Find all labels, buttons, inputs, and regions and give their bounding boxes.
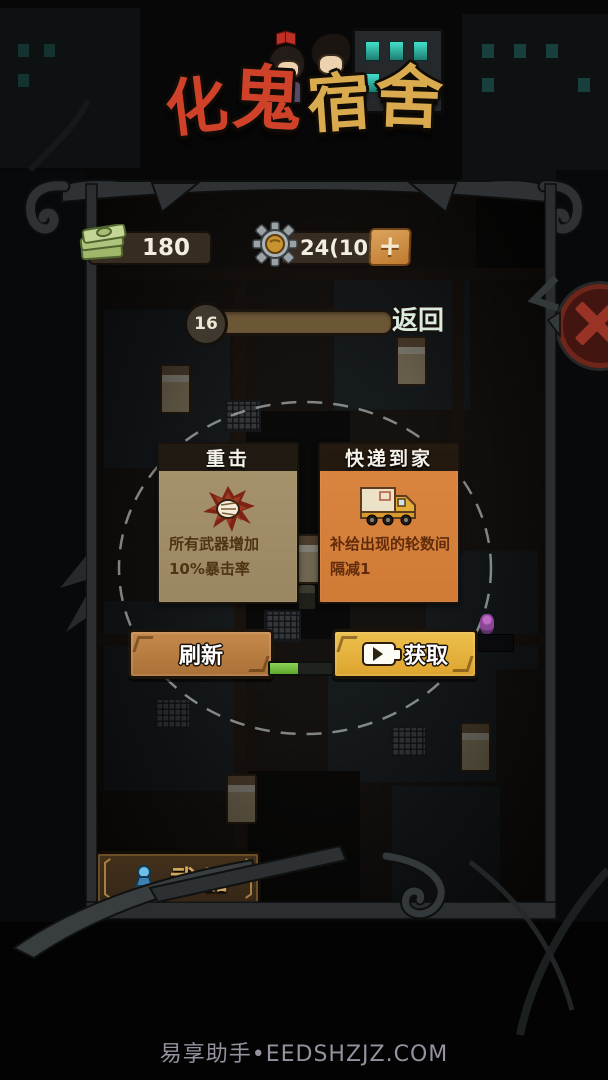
logo-char: 鬼 <box>230 62 304 136</box>
logo-char: 化 <box>162 72 231 141</box>
brace-decoration <box>240 862 252 895</box>
card-title: 快递到家 <box>345 444 433 471</box>
add-parts-button[interactable]: + <box>368 228 411 266</box>
card-description: 补给出现的轮数间 隔减1 <box>330 532 454 582</box>
ad-progress-bar <box>268 661 335 676</box>
money-stack-icon <box>76 224 130 266</box>
logo-char: 宿 <box>305 70 372 137</box>
ghost-sprite <box>480 614 494 634</box>
round-counter: 16 <box>184 302 228 346</box>
gear-icon <box>252 221 298 267</box>
weapon-label: 武器 <box>170 860 236 897</box>
logo-char: 舍 <box>374 64 444 134</box>
card-title: 重击 <box>206 444 250 471</box>
red-bow-icon <box>276 32 296 44</box>
brace-decoration <box>104 862 116 895</box>
back-button[interactable]: 返回 <box>392 300 444 337</box>
card-description: 所有武器增加 10%暴击率 <box>169 532 293 582</box>
game-screen: 化 鬼 宿 舍 <box>0 0 608 1080</box>
get-button[interactable]: 获取 <box>332 629 478 679</box>
round-value: 16 <box>194 314 218 334</box>
game-logo: 化 鬼 宿 舍 <box>0 0 608 180</box>
logo-title: 化 鬼 宿 舍 <box>0 64 608 135</box>
round-progress-bar <box>204 309 394 336</box>
watermark: 易享助手•EEDSHZJZ.COM <box>0 1036 608 1068</box>
perk-card-heavy-hit[interactable]: 重击 所有武器增加 10%暴击率 <box>157 442 299 604</box>
weapon-button[interactable]: 武器 <box>95 851 261 906</box>
video-ad-icon <box>362 642 396 666</box>
plus-icon: + <box>378 229 403 262</box>
money-value: 180 <box>142 235 190 261</box>
weapon-icon <box>132 864 156 892</box>
delivery-truck-icon <box>358 484 420 526</box>
perk-card-delivery[interactable]: 快递到家 补给出现的轮数间 隔减1 <box>318 442 460 604</box>
fist-impact-icon <box>201 484 255 534</box>
refresh-button[interactable]: 刷新 <box>128 629 274 679</box>
